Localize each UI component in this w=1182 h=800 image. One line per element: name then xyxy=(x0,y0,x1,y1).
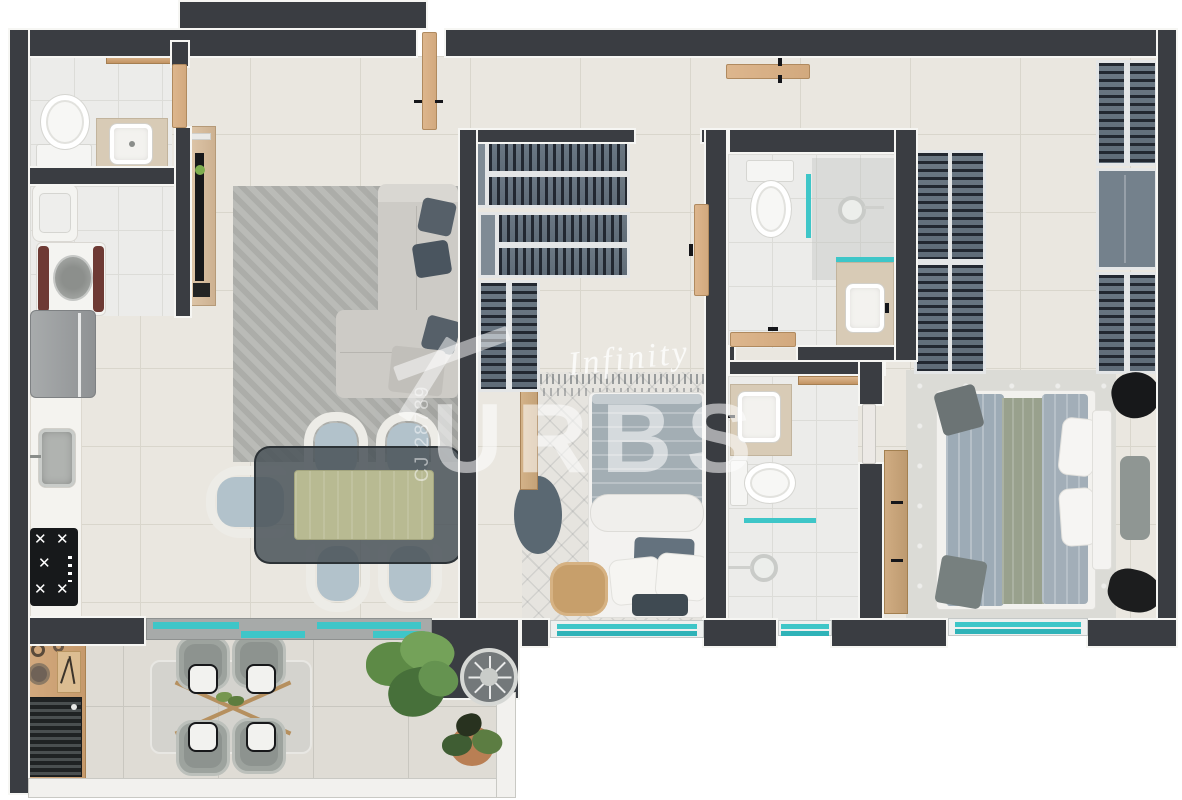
wardrobe-hanging-clothes xyxy=(499,248,627,275)
master-bench xyxy=(1120,456,1150,540)
bathroom2-door xyxy=(730,332,796,347)
bathroom3-shower-glass xyxy=(744,518,816,523)
cooktop-knobs xyxy=(68,556,72,582)
bedroom1-rug-border xyxy=(522,374,714,384)
bedroom1-door-handle xyxy=(689,244,693,256)
bathroom2-sink xyxy=(845,283,885,333)
vanity-handle xyxy=(885,303,889,313)
fan-hub xyxy=(480,668,498,686)
wardrobe-hanging-clothes xyxy=(917,153,948,259)
cabinet-seam xyxy=(1124,175,1126,263)
wall-bathroom2-right xyxy=(894,128,918,362)
place-plate xyxy=(188,722,218,752)
wall-bathroom3-right-upper xyxy=(858,360,884,406)
bathroom2-glass-partition xyxy=(836,257,894,262)
hall-door-handle xyxy=(778,58,782,66)
wall-bottom-seg xyxy=(830,618,948,648)
hvac-vent-fan xyxy=(460,648,518,706)
barbecue-counter xyxy=(22,636,86,780)
bathroom2-shower-glass xyxy=(806,174,811,238)
potted-plant-small xyxy=(438,712,508,778)
laundry-sink-basin xyxy=(39,193,71,233)
wall-bathroom1-bottom xyxy=(28,166,178,186)
bathroom1-faucet xyxy=(129,141,135,147)
wardrobe-hanging-clothes xyxy=(512,283,537,389)
refrigerator xyxy=(30,310,96,398)
refrigerator-door-line xyxy=(78,313,81,397)
wardrobe-hanging-clothes xyxy=(1130,63,1155,163)
burner-icon: ✕ xyxy=(34,580,47,598)
utensil xyxy=(69,656,76,684)
bathroom1-toilet-bowl xyxy=(40,94,90,150)
bathroom3-shower-arm xyxy=(728,566,752,569)
bathroom2-toilet-bowl xyxy=(750,180,792,238)
wardrobe-hanging-clothes xyxy=(499,215,627,242)
wall-bedroom1-top xyxy=(458,128,636,144)
wall-service-right xyxy=(174,126,192,318)
wardrobe-hanging-clothes xyxy=(1130,275,1155,371)
wall-bottom-seg xyxy=(702,618,778,648)
wardrobe-side-cabinet xyxy=(481,215,495,275)
place-plate xyxy=(246,664,276,694)
washing-machine xyxy=(36,242,106,316)
washer-left-pad xyxy=(38,246,49,312)
bedroom1-stool xyxy=(550,562,608,616)
bathroom3-shower-head xyxy=(750,554,778,582)
kitchen-sink xyxy=(38,428,76,488)
herb-leaf xyxy=(228,696,244,706)
bathroom2-shower-arm xyxy=(864,206,884,209)
washer-drum xyxy=(53,255,93,301)
bathroom3-vanity xyxy=(730,384,792,456)
wall-middle-vertical xyxy=(704,128,728,620)
balcony-railing-bottom xyxy=(28,778,516,798)
window-glass xyxy=(781,624,829,629)
place-plate xyxy=(246,722,276,752)
wall-hall-bottom xyxy=(728,128,918,154)
entry-door-handle xyxy=(435,100,443,103)
wardrobe-hanging-clothes xyxy=(489,177,627,205)
bedroom1-door xyxy=(694,204,709,296)
closet-wardrobe-left xyxy=(914,150,986,374)
cutting-board xyxy=(57,651,81,693)
grill-knob xyxy=(71,704,77,710)
closet-cabinet-right xyxy=(1096,168,1158,270)
bedroom1-dresser xyxy=(520,378,538,490)
wardrobe-hanging-clothes xyxy=(917,265,948,371)
wardrobe-hanging-clothes xyxy=(1099,63,1124,163)
bathroom2-shower-head xyxy=(838,196,866,224)
wall-top-protrusion xyxy=(178,0,428,30)
grill-grate xyxy=(26,697,82,777)
bathroom2-vanity xyxy=(836,262,894,350)
wardrobe-hanging-clothes xyxy=(952,153,983,259)
sofa-pillow xyxy=(412,239,453,278)
media-box xyxy=(193,283,210,297)
utensil xyxy=(60,658,70,683)
sliding-panel-glass xyxy=(153,622,239,629)
wall-top-left xyxy=(8,28,418,58)
window-glass xyxy=(955,622,1082,627)
apartment-floor-plan: ✕ ✕ ✕ ✕ ✕ xyxy=(0,0,1182,800)
table-centerpiece xyxy=(214,690,248,708)
hall-door xyxy=(726,64,810,79)
bathroom2-toilet-tank xyxy=(746,160,794,182)
master-throw-dark xyxy=(934,554,988,609)
burner-icon: ✕ xyxy=(34,530,47,548)
bathroom2-door-handle xyxy=(768,327,778,331)
master-window xyxy=(948,618,1088,636)
wall-top-right xyxy=(444,28,1170,58)
master-dresser xyxy=(884,450,908,614)
wardrobe-hanging-clothes xyxy=(489,143,627,171)
burner-icon: ✕ xyxy=(56,580,69,598)
bathroom3-door xyxy=(862,404,876,464)
washer-right-pad xyxy=(93,246,104,312)
burner-icon: ✕ xyxy=(56,530,69,548)
bedroom1-duvet-roll xyxy=(590,494,704,532)
master-blanket-green xyxy=(1002,398,1044,604)
sliding-panel-glass xyxy=(317,622,421,629)
bathroom3-window xyxy=(778,620,832,636)
wall-bottom-seg xyxy=(520,618,550,648)
master-headboard xyxy=(1092,410,1112,570)
sliding-panel-glass xyxy=(241,631,305,638)
bedroom1-wardrobe-mid xyxy=(478,212,630,278)
cabinet-front xyxy=(1099,171,1155,267)
wall-bathroom3-right-lower xyxy=(858,462,884,620)
cooktop: ✕ ✕ ✕ ✕ ✕ xyxy=(30,528,78,606)
wall-right xyxy=(1156,28,1178,640)
entry-door xyxy=(422,32,437,130)
hall-door-handle xyxy=(778,75,782,83)
burner-icon: ✕ xyxy=(38,554,51,572)
bedroom1-window xyxy=(550,620,704,638)
entry-door-handle xyxy=(414,100,422,103)
bathroom3-sink xyxy=(737,391,781,443)
bathroom1-vanity xyxy=(96,118,168,170)
window-glass xyxy=(557,624,697,629)
wall-bottom-seg xyxy=(1086,618,1178,648)
wardrobe-hanging-clothes xyxy=(1099,275,1124,371)
wall-living-bedroom1 xyxy=(458,128,478,620)
soundbar xyxy=(191,133,211,140)
bedroom1-pillow-accent xyxy=(632,594,688,616)
bathroom1-door xyxy=(172,64,187,128)
bedroom1-wardrobe-top xyxy=(468,140,630,208)
wall-left xyxy=(8,28,30,795)
wardrobe-hanging-clothes xyxy=(952,265,983,371)
dresser-handle xyxy=(891,559,903,562)
bedroom1-blanket-fold xyxy=(592,394,702,404)
wall-balcony-top xyxy=(28,616,146,646)
table-runner xyxy=(294,470,434,540)
laundry-sink xyxy=(32,184,78,242)
bathroom3-toilet-bowl xyxy=(744,462,796,504)
closet-wardrobe-right-top xyxy=(1096,60,1158,166)
round-plate xyxy=(28,663,50,685)
decor-plant-small xyxy=(195,165,205,175)
closet-wardrobe-right-bottom xyxy=(1096,272,1158,374)
dresser-handle xyxy=(891,501,903,504)
sofa-pillow xyxy=(417,197,457,237)
